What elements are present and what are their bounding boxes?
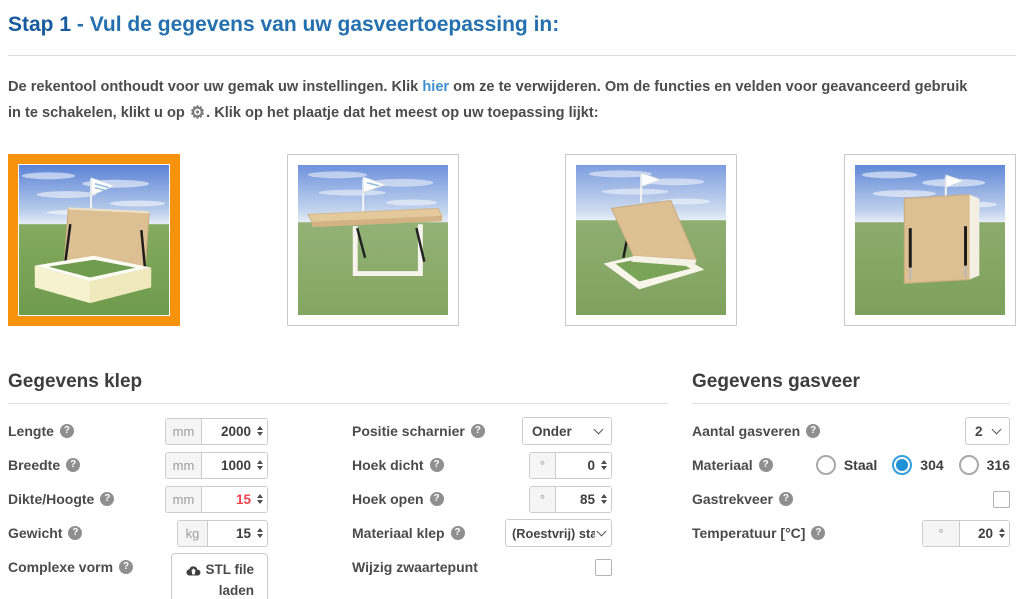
radio-circle-icon: [959, 455, 979, 475]
field-hoek-dicht: Hoek dicht? ° 0: [352, 451, 612, 479]
help-icon[interactable]: ?: [68, 526, 82, 540]
unit-addon: °: [923, 521, 960, 546]
help-icon[interactable]: ?: [451, 526, 465, 540]
section-klep-heading: Gegevens klep: [8, 371, 668, 404]
stepper-arrows-icon[interactable]: [601, 453, 607, 478]
page-title: Stap 1 - Vul de gegevens van uw gasveert…: [8, 12, 1016, 38]
stepper-arrows-icon[interactable]: [257, 453, 263, 478]
field-dikte-hoogte: Dikte/Hoogte? mm 15: [8, 485, 268, 513]
stepper-arrows-icon[interactable]: [257, 419, 263, 444]
application-thumbnails: [8, 154, 1016, 326]
stepper-arrows-icon[interactable]: [999, 521, 1005, 546]
radio-316[interactable]: 316: [959, 455, 1010, 475]
gastrekveer-label: Gastrekveer: [692, 485, 773, 513]
gasveer-rekentool-stap1: Stap 1 - Vul de gegevens van uw gasveert…: [0, 0, 1024, 599]
field-aantal-gasveren: Aantal gasveren? 2: [692, 417, 1010, 445]
field-materiaal-klep: Materiaal klep? (Roestvrij) staal: [352, 519, 612, 547]
gewicht-input[interactable]: 15: [208, 521, 267, 546]
stepper-arrows-icon[interactable]: [257, 487, 263, 512]
intro-text: De rekentool onthoudt voor uw gemak uw i…: [8, 75, 968, 126]
section-gasveer-heading: Gegevens gasveer: [692, 371, 1010, 404]
stl-upload-button[interactable]: STL file laden: [171, 553, 268, 599]
dikte-label: Dikte/Hoogte: [8, 485, 94, 513]
complexe-vorm-label: Complexe vorm: [8, 553, 113, 581]
gastrekveer-checkbox[interactable]: [993, 491, 1010, 508]
step-description: - Vul de gegevens van uw gasveertoepassi…: [71, 13, 559, 36]
help-icon[interactable]: ?: [430, 458, 444, 472]
thumbnail-verticale-klep[interactable]: [844, 154, 1016, 326]
unit-addon: mm: [166, 487, 202, 512]
radio-staal[interactable]: Staal: [816, 455, 877, 475]
help-icon[interactable]: ?: [759, 458, 773, 472]
section-gegevens-klep: Gegevens klep Lengte? mm 2000 Breedte? m…: [8, 371, 668, 599]
thumbnail-schuin-luik[interactable]: [565, 154, 737, 326]
positie-scharnier-select[interactable]: Onder: [522, 417, 612, 445]
help-icon[interactable]: ?: [806, 424, 820, 438]
help-icon[interactable]: ?: [119, 560, 133, 574]
field-complexe-vorm: Complexe vorm? STL file laden: [8, 553, 268, 599]
help-icon[interactable]: ?: [430, 492, 444, 506]
field-gewicht: Gewicht? kg 15: [8, 519, 268, 547]
radio-circle-icon: [816, 455, 836, 475]
field-breedte: Breedte? mm 1000: [8, 451, 268, 479]
field-materiaal-gasveer: Materiaal? Staal 304 316: [692, 451, 1010, 479]
aantal-gasveren-label: Aantal gasveren: [692, 417, 800, 445]
unit-addon: mm: [166, 419, 202, 444]
unit-addon: °: [530, 487, 556, 512]
field-temperatuur: Temperatuur [°C]? ° 20: [692, 519, 1010, 547]
radio-304[interactable]: 304: [892, 455, 943, 475]
unit-addon: °: [530, 453, 556, 478]
dikte-input[interactable]: 15: [202, 487, 267, 512]
help-icon[interactable]: ?: [811, 526, 825, 540]
unit-addon: kg: [178, 521, 208, 546]
hoek-open-label: Hoek open: [352, 485, 424, 513]
lengte-input[interactable]: 2000: [202, 419, 267, 444]
materiaal-klep-select[interactable]: (Roestvrij) staal: [505, 519, 612, 547]
help-icon[interactable]: ?: [471, 424, 485, 438]
breedte-input[interactable]: 1000: [202, 453, 267, 478]
materiaal-radio-group: Staal 304 316: [801, 455, 1010, 475]
positie-scharnier-label: Positie scharnier: [352, 417, 465, 445]
breedte-label: Breedte: [8, 451, 60, 479]
field-hoek-open: Hoek open? ° 85: [352, 485, 612, 513]
scene-angled-hatch-icon: [576, 165, 726, 315]
help-icon[interactable]: ?: [60, 424, 74, 438]
scene-box-lid-open-icon: [19, 165, 169, 315]
temperatuur-label: Temperatuur [°C]: [692, 519, 805, 547]
thumbnail-kist-met-klep[interactable]: [8, 154, 180, 326]
stepper-arrows-icon[interactable]: [257, 521, 263, 546]
help-icon[interactable]: ?: [66, 458, 80, 472]
materiaal-klep-label: Materiaal klep: [352, 519, 445, 547]
intro-before-link: De rekentool onthoudt voor uw gemak uw i…: [8, 79, 422, 95]
temperatuur-input[interactable]: 20: [960, 521, 1009, 546]
wijzig-zwaartepunt-checkbox[interactable]: [595, 559, 612, 576]
radio-circle-selected-icon: [892, 455, 912, 475]
field-wijzig-zwaartepunt: Wijzig zwaartepunt: [352, 553, 612, 581]
chevron-down-icon: [597, 526, 607, 536]
scene-vertical-panel-icon: [855, 165, 1005, 315]
intro-after-gear: . Klik op het plaatje dat het meest op u…: [206, 105, 598, 121]
field-positie-scharnier: Positie scharnier? Onder: [352, 417, 612, 445]
hoek-dicht-input[interactable]: 0: [556, 453, 611, 478]
lengte-label: Lengte: [8, 417, 54, 445]
field-lengte: Lengte? mm 2000: [8, 417, 268, 445]
hoek-open-input[interactable]: 85: [556, 487, 611, 512]
help-icon[interactable]: ?: [779, 492, 793, 506]
aantal-gasveren-select[interactable]: 2: [965, 417, 1010, 445]
scene-horizontal-canopy-icon: [298, 165, 448, 315]
chevron-down-icon: [992, 424, 1002, 434]
help-icon[interactable]: ?: [100, 492, 114, 506]
hoek-dicht-label: Hoek dicht: [352, 451, 424, 479]
form-sections: Gegevens klep Lengte? mm 2000 Breedte? m…: [8, 371, 1016, 599]
thumbnail-horizontale-luifel[interactable]: [287, 154, 459, 326]
step-label: Stap 1: [8, 13, 71, 36]
stepper-arrows-icon[interactable]: [601, 487, 607, 512]
unit-addon: mm: [166, 453, 202, 478]
section-gegevens-gasveer: Gegevens gasveer Aantal gasveren? 2 Mate…: [692, 371, 1010, 599]
title-divider: [8, 55, 1016, 56]
materiaal-label: Materiaal: [692, 451, 753, 479]
cloud-upload-icon: [186, 565, 201, 576]
gewicht-label: Gewicht: [8, 519, 62, 547]
chevron-down-icon: [594, 424, 604, 434]
gear-icon[interactable]: ⚙: [190, 100, 205, 125]
hier-link[interactable]: hier: [422, 79, 449, 95]
field-gastrekveer: Gastrekveer?: [692, 485, 1010, 513]
wijzig-zwaartepunt-label: Wijzig zwaartepunt: [352, 553, 478, 581]
